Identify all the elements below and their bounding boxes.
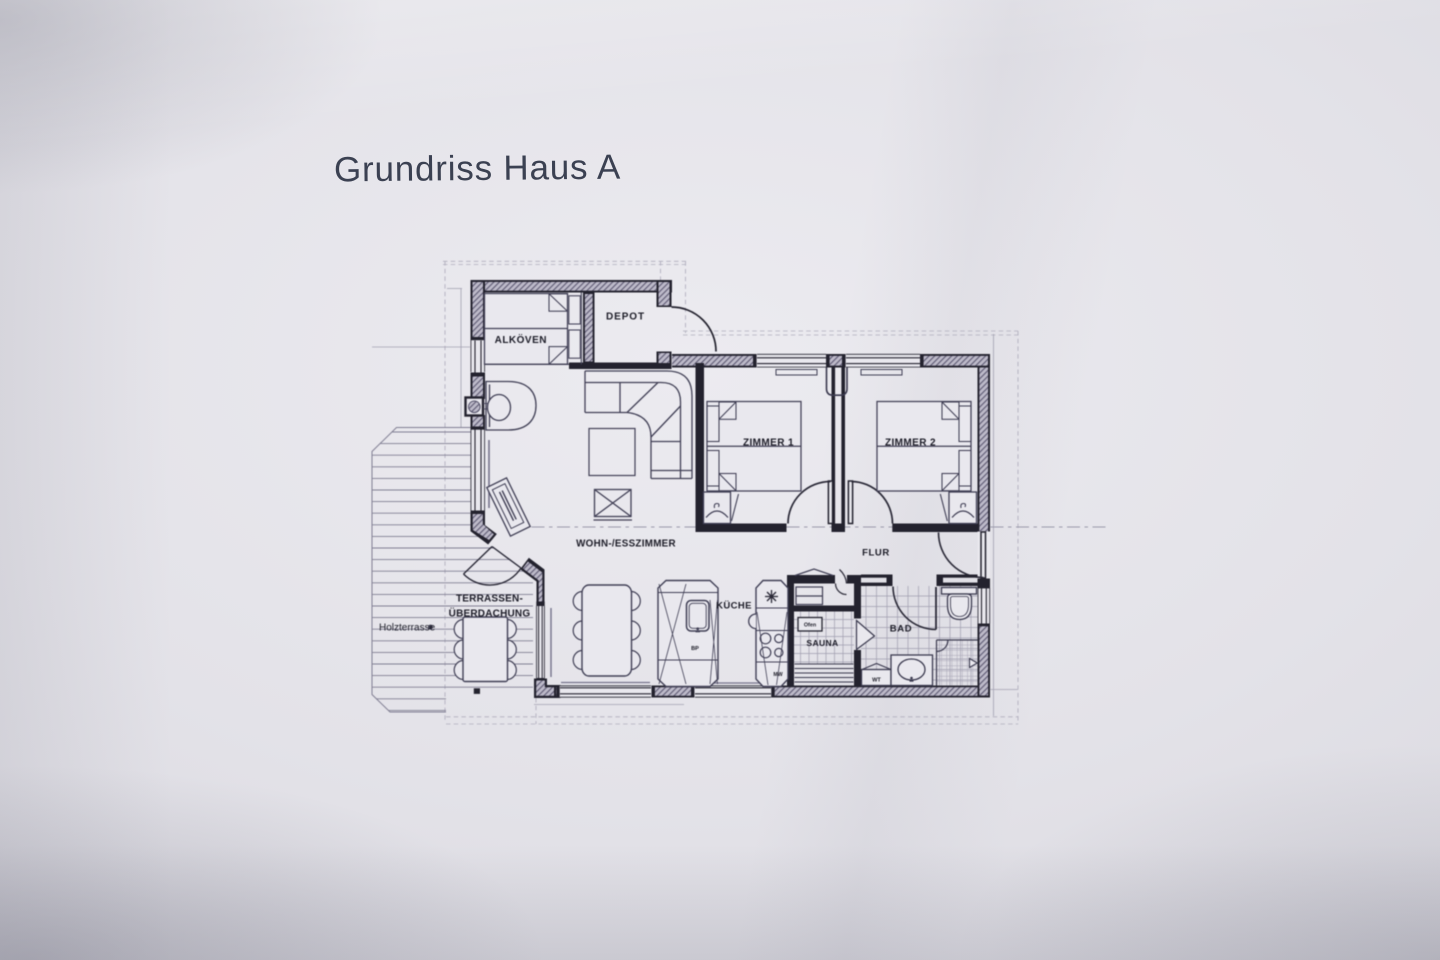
svg-text:Holzterrasse: Holzterrasse [379, 623, 436, 634]
svg-text:TERRASSEN-: TERRASSEN- [456, 594, 523, 605]
svg-text:DEPOT: DEPOT [606, 312, 645, 323]
svg-text:MW: MW [773, 672, 782, 678]
svg-text:KÜCHE: KÜCHE [716, 601, 752, 612]
svg-text:ÜBERDACHUNG: ÜBERDACHUNG [449, 607, 531, 620]
svg-text:FLUR: FLUR [862, 548, 890, 559]
svg-text:ALKÖVEN: ALKÖVEN [495, 333, 547, 346]
svg-text:WT: WT [872, 678, 881, 684]
svg-text:WOHN-/ESSZIMMER: WOHN-/ESSZIMMER [576, 539, 676, 550]
svg-text:ZIMMER 1: ZIMMER 1 [743, 438, 794, 449]
svg-text:SAUNA: SAUNA [806, 638, 838, 648]
svg-text:BAD: BAD [890, 624, 912, 635]
svg-text:ZIMMER 2: ZIMMER 2 [885, 438, 936, 449]
svg-text:BP: BP [691, 646, 699, 652]
svg-text:Ofen: Ofen [804, 623, 816, 629]
